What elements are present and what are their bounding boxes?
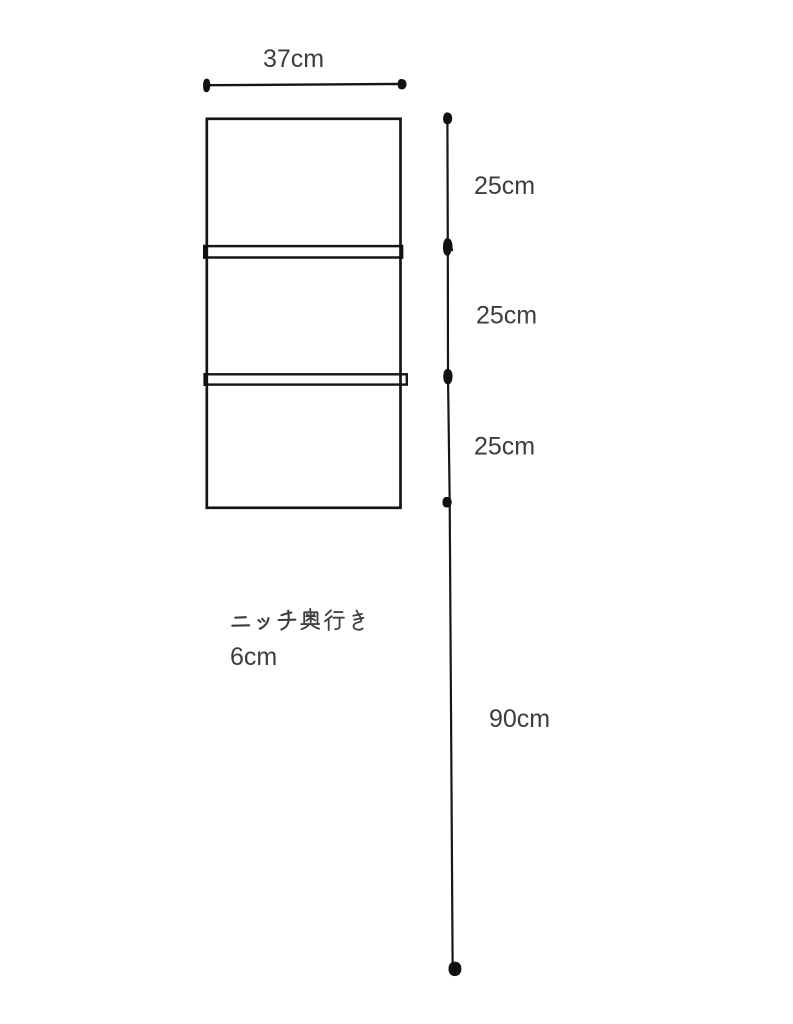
svg-text:25cm: 25cm (474, 172, 535, 200)
svg-text:37cm: 37cm (263, 45, 324, 73)
svg-text:90cm: 90cm (489, 705, 550, 733)
svg-text:25cm: 25cm (474, 433, 535, 461)
svg-text:25cm: 25cm (476, 302, 537, 330)
svg-text:6cm: 6cm (230, 643, 277, 671)
